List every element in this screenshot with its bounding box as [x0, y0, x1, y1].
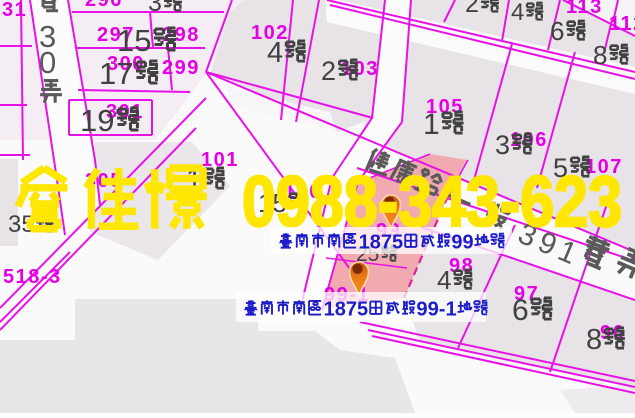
svg-text:15: 15	[117, 23, 151, 58]
svg-text:99-1: 99-1	[416, 299, 456, 321]
svg-text:2: 2	[321, 56, 336, 86]
svg-text:3: 3	[495, 130, 510, 160]
svg-text:8: 8	[586, 324, 602, 356]
svg-text:31: 31	[2, 0, 27, 21]
svg-text:2: 2	[465, 0, 479, 18]
svg-text:1875: 1875	[359, 232, 404, 254]
svg-text:8: 8	[593, 40, 607, 70]
svg-text:296: 296	[85, 0, 123, 11]
svg-text:4: 4	[267, 37, 283, 69]
svg-text:4: 4	[437, 265, 451, 295]
svg-text:1: 1	[423, 108, 440, 141]
svg-text:17: 17	[99, 56, 133, 91]
svg-text:0: 0	[39, 45, 56, 80]
svg-text:112: 112	[609, 13, 635, 35]
svg-text:99: 99	[451, 232, 473, 254]
svg-text:3: 3	[148, 0, 162, 17]
svg-text:4: 4	[511, 0, 524, 26]
svg-text:299: 299	[162, 57, 200, 79]
svg-text:19: 19	[80, 103, 114, 138]
svg-text:6: 6	[512, 294, 529, 327]
svg-text:6: 6	[550, 16, 564, 46]
svg-text:1875: 1875	[324, 299, 369, 321]
svg-text:518-3: 518-3	[3, 266, 62, 288]
svg-text:113: 113	[566, 0, 603, 18]
